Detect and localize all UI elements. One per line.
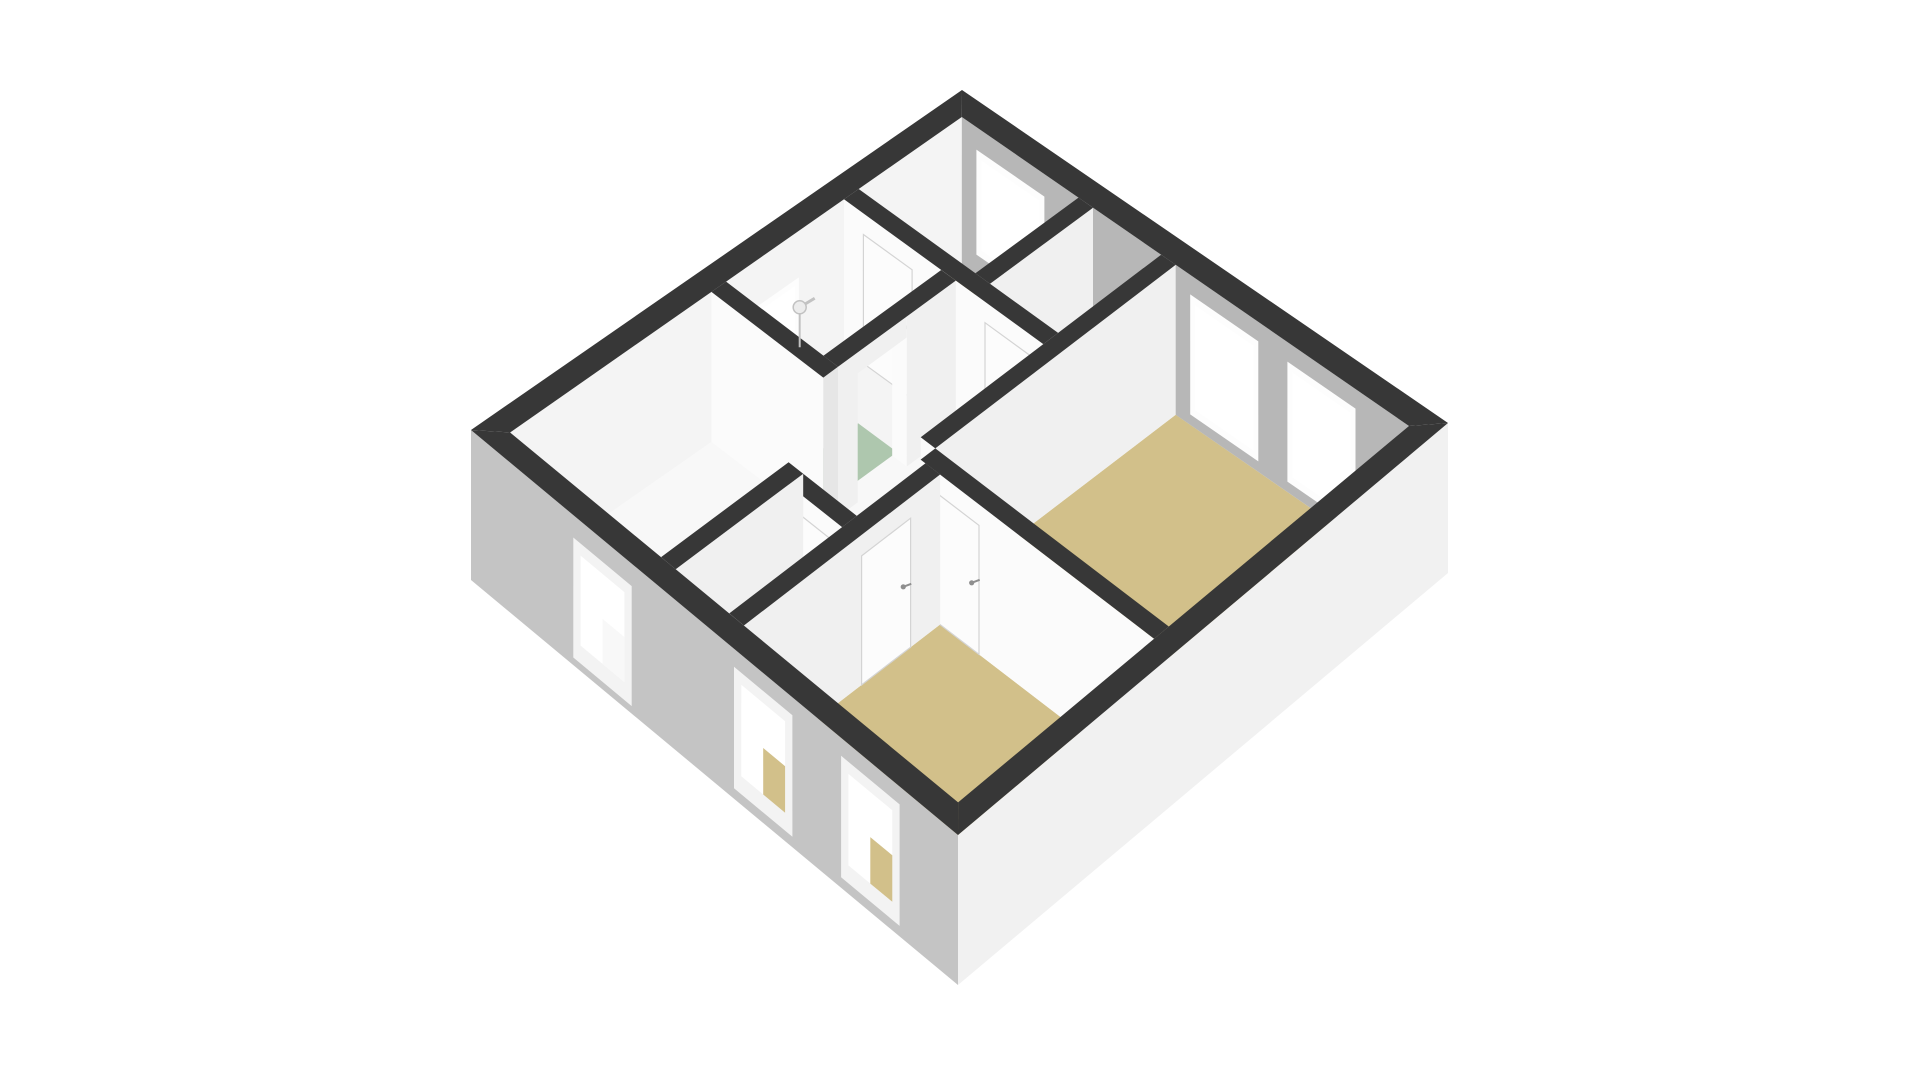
wall-face-bathroom-door-wall [838,352,858,516]
shower-head-icon [793,301,806,314]
floorplan-stage [0,0,1920,1080]
floorplan-3d-canvas [0,0,1920,1080]
